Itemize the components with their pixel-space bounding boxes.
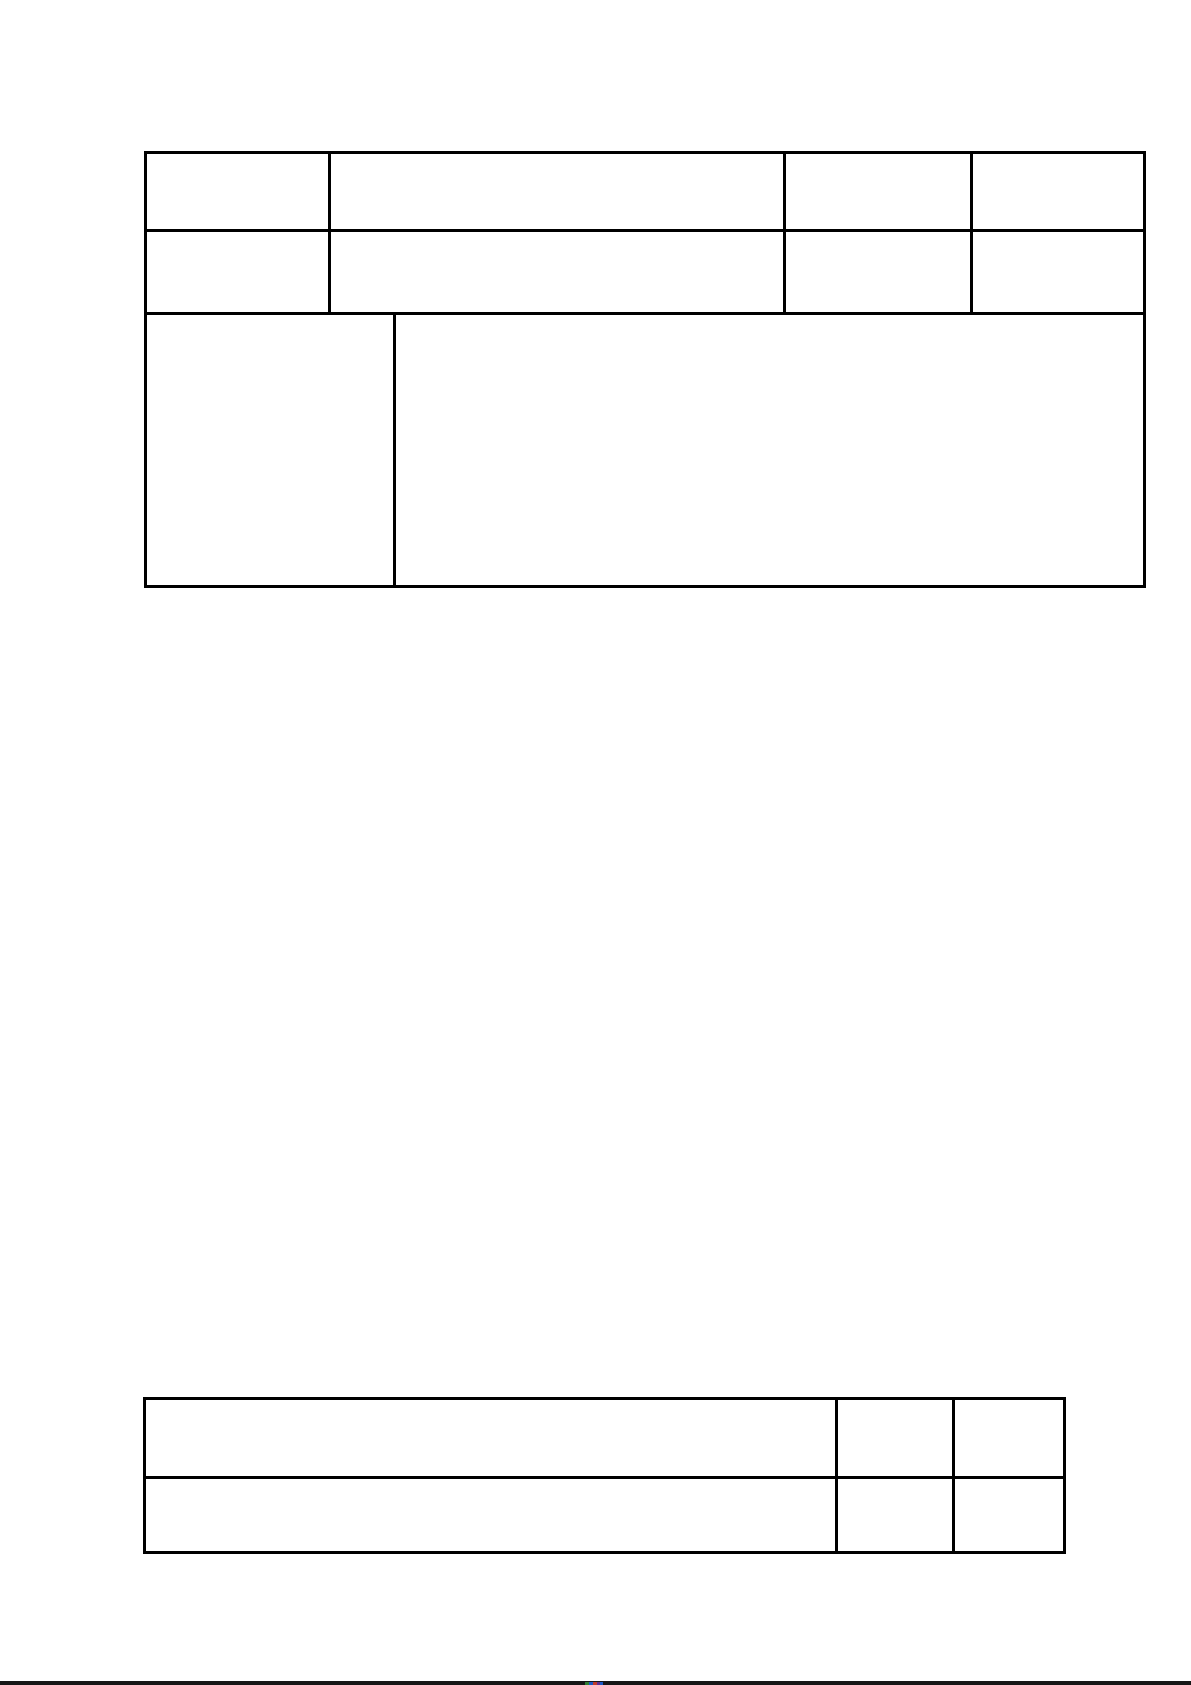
- table1-r3c1-cell[interactable]: [147, 315, 393, 585]
- table2-r1c1-cell[interactable]: [146, 1400, 835, 1476]
- table2-r2c1-cell[interactable]: [146, 1479, 835, 1551]
- table1-r2c1-cell[interactable]: [147, 232, 328, 312]
- table1-r2c3-cell[interactable]: [786, 232, 970, 312]
- document-page: [0, 0, 1191, 1685]
- table-row: [146, 1479, 1063, 1551]
- table1-r2c4-cell[interactable]: [973, 232, 1143, 312]
- table1-r1c4-cell[interactable]: [973, 154, 1143, 229]
- table1-r1c1-cell[interactable]: [147, 154, 328, 229]
- table1-r3c2-cell[interactable]: [396, 315, 1143, 585]
- page-separator-bar: [0, 1681, 1191, 1685]
- table-2: [143, 1397, 1066, 1554]
- table2-r1c3-cell[interactable]: [955, 1400, 1063, 1476]
- table-row: [147, 154, 1143, 229]
- table2-r2c3-cell[interactable]: [955, 1479, 1063, 1551]
- table2-r2c2-cell[interactable]: [838, 1479, 952, 1551]
- table-row: [147, 232, 1143, 312]
- table2-r1c2-cell[interactable]: [838, 1400, 952, 1476]
- table-1: [144, 151, 1146, 588]
- table-row: [146, 1400, 1063, 1476]
- table1-r1c2-cell[interactable]: [331, 154, 783, 229]
- table1-r2c2-cell[interactable]: [331, 232, 783, 312]
- table1-r1c3-cell[interactable]: [786, 154, 970, 229]
- table-row: [147, 315, 1143, 585]
